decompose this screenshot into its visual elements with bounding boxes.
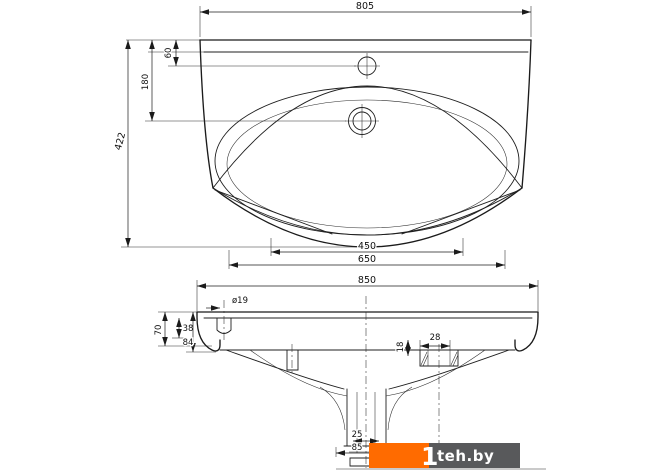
dim-label-hole-diameter: ø19 — [232, 296, 248, 306]
dim-label-25: 25 — [352, 430, 363, 440]
dim-bracket-width: 28 — [420, 333, 450, 350]
plan-front-edge — [213, 188, 522, 247]
dim-label-450: 450 — [358, 241, 376, 252]
dim-label-38: 38 — [183, 324, 194, 334]
dim-label-18: 18 — [396, 342, 406, 353]
dim-bracket-offset: 18 — [396, 340, 408, 356]
right-bracket — [420, 344, 458, 443]
dim-label-180: 180 — [141, 74, 151, 90]
dim-label-85: 85 — [352, 443, 363, 453]
dim-label-422: 422 — [113, 131, 128, 151]
plan-view: 805 60 180 422 450 — [113, 1, 538, 311]
teh-by-watermark[interactable]: 1 teh.by — [369, 442, 520, 471]
plan-right-edge — [522, 40, 531, 188]
drawing-canvas: 805 60 180 422 450 — [0, 0, 670, 471]
plan-left-edge — [200, 40, 213, 188]
dim-label-28: 28 — [430, 333, 441, 343]
drain-hole — [345, 104, 379, 138]
dim-top-width: 805 — [200, 1, 531, 37]
dim-bowl-width: 650 — [229, 250, 505, 269]
dim-label-60: 60 — [164, 48, 174, 59]
faucet-hole — [354, 53, 380, 79]
dim-label-805: 805 — [356, 1, 374, 12]
dim-depth: 422 — [113, 40, 360, 247]
logo-orange-block — [369, 443, 429, 468]
dim-faucet-offset: 60 — [164, 40, 356, 66]
dim-label-650: 650 — [358, 254, 376, 265]
basin-inner-ellipse — [227, 100, 507, 228]
dim-label-70: 70 — [154, 325, 164, 336]
dim-label-850: 850 — [358, 275, 376, 286]
left-bracket — [287, 344, 298, 376]
sink-technical-drawing: 805 60 180 422 450 — [0, 0, 670, 471]
logo-site-text: teh.by — [437, 447, 494, 465]
basin-upper-rim — [213, 86, 522, 188]
dim-label-84: 84 — [183, 338, 194, 348]
logo-1-mark: 1 — [421, 442, 438, 471]
dim-side-upper: 38 — [172, 318, 193, 338]
dim-overall-width: 850 — [197, 275, 538, 311]
